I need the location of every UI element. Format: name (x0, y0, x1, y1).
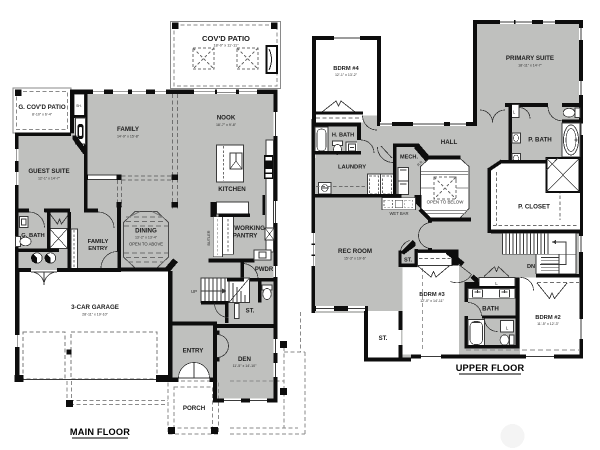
svg-text:BUTLER: BUTLER (207, 230, 211, 245)
svg-text:PWDR: PWDR (255, 267, 274, 273)
svg-text:15'-3" x 19'-6": 15'-3" x 19'-6" (344, 257, 367, 261)
svg-text:12'-1" x 13'-2": 12'-1" x 13'-2" (335, 73, 358, 77)
svg-text:NOOK: NOOK (217, 115, 236, 122)
svg-text:8'-10" x 6'-4": 8'-10" x 6'-4" (32, 113, 53, 117)
svg-text:LAUNDRY: LAUNDRY (338, 165, 366, 171)
svg-text:MAIN FLOOR: MAIN FLOOR (70, 427, 130, 437)
svg-text:MECH.: MECH. (400, 155, 418, 161)
svg-text:FAMILY: FAMILY (117, 126, 140, 133)
svg-text:11'-5" x 12'-3": 11'-5" x 12'-3" (537, 322, 560, 326)
svg-text:BDRM #4: BDRM #4 (333, 66, 359, 72)
svg-text:18'-11" x 14'-7": 18'-11" x 14'-7" (518, 64, 543, 68)
svg-text:G. COV'D PATIO: G. COV'D PATIO (18, 104, 65, 111)
svg-text:ST.: ST. (404, 258, 413, 264)
svg-text:BATH: BATH (482, 306, 499, 313)
svg-text:28'-11" x 19'-10": 28'-11" x 19'-10" (82, 313, 109, 317)
svg-text:DINING: DINING (135, 228, 157, 235)
svg-text:L: L (495, 281, 498, 286)
svg-text:WET BAR: WET BAR (389, 211, 408, 216)
svg-text:HALL: HALL (441, 139, 458, 146)
svg-text:L: L (506, 326, 509, 331)
svg-text:REC ROOM: REC ROOM (338, 248, 372, 255)
svg-text:ST.: ST. (246, 309, 255, 315)
svg-text:P. BATH: P. BATH (528, 137, 552, 144)
svg-text:GUEST SUITE: GUEST SUITE (28, 168, 69, 175)
svg-text:11'-5" x 14'-10": 11'-5" x 14'-10" (233, 364, 258, 368)
svg-text:SH.: SH. (76, 104, 82, 108)
svg-text:BDRM #3: BDRM #3 (419, 292, 445, 298)
svg-text:12'-0" x 14'-11": 12'-0" x 14'-11" (420, 299, 445, 303)
svg-text:BDRM #2: BDRM #2 (535, 315, 560, 321)
svg-text:OPEN TO ABOVE: OPEN TO ABOVE (129, 242, 163, 247)
svg-text:3-CAR GARAGE: 3-CAR GARAGE (71, 304, 119, 311)
svg-text:DEN: DEN (238, 356, 252, 363)
svg-text:UPPER FLOOR: UPPER FLOOR (456, 363, 525, 373)
svg-text:13'-2" x 13'-4": 13'-2" x 13'-4" (135, 236, 158, 240)
svg-text:ENTRY: ENTRY (183, 348, 205, 355)
svg-text:ST.: ST. (379, 336, 388, 342)
svg-text:WORKING: WORKING (234, 225, 265, 232)
svg-text:PRIMARY SUITE: PRIMARY SUITE (506, 55, 554, 62)
svg-text:14'-9" x 15'-8": 14'-9" x 15'-8" (117, 135, 140, 139)
svg-text:ENTRY: ENTRY (88, 246, 108, 252)
svg-text:FAMILY: FAMILY (88, 239, 109, 245)
svg-text:18'-0" x 11'-11": 18'-0" x 11'-11" (214, 44, 240, 48)
svg-text:DN: DN (527, 264, 535, 270)
svg-text:PORCH: PORCH (183, 405, 206, 412)
svg-text:H. BATH: H. BATH (332, 133, 354, 139)
svg-text:KITCHEN: KITCHEN (218, 186, 246, 193)
svg-text:COV'D PATIO: COV'D PATIO (202, 34, 250, 43)
svg-text:18'-7" x 9'-8": 18'-7" x 9'-8" (216, 123, 237, 127)
svg-text:PANTRY: PANTRY (233, 232, 259, 239)
svg-text:P. CLOSET: P. CLOSET (518, 204, 550, 211)
svg-text:OPEN TO BELOW: OPEN TO BELOW (427, 200, 465, 205)
svg-text:12'-1" x 14'-7": 12'-1" x 14'-7" (38, 177, 61, 181)
svg-text:UP: UP (191, 289, 197, 294)
